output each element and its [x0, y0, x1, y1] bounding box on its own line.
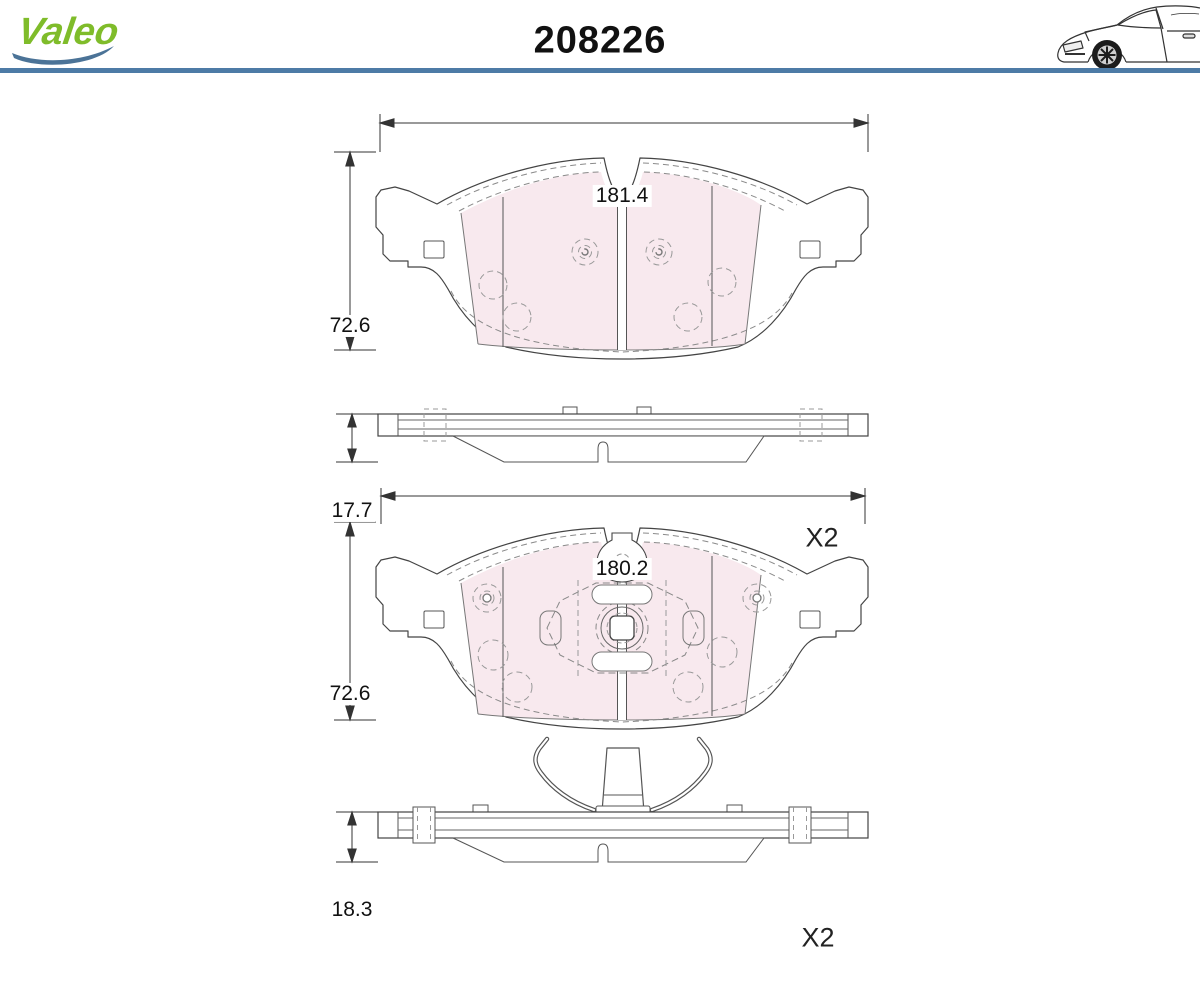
catalog-page: { "header": { "brand_name": "Valeo", "pa… [0, 0, 1200, 1000]
pad1-width-dimension [380, 114, 868, 152]
pad2-height-label: 72.6 [327, 683, 374, 705]
pad1-thickness-dimension [336, 414, 378, 462]
pad2-quantity-label: X2 [799, 925, 836, 952]
valeo-logo: Valeo [8, 6, 126, 68]
pad1-height-label: 72.6 [327, 315, 374, 337]
part-number: 208226 [534, 20, 667, 63]
technical-drawing-area: 181.4 72.6 17.7 X2 180.2 72.6 18.3 X2 [0, 73, 1200, 1000]
car-icon [1055, 1, 1200, 71]
technical-drawing [0, 73, 1200, 1000]
pad1-width-label: 181.4 [593, 185, 652, 207]
pad2-thickness-label: 18.3 [329, 899, 376, 921]
brand-text: Valeo [15, 10, 121, 53]
pad1-thickness-label: 17.7 [329, 500, 376, 522]
brand-wordmark: Valeo [15, 10, 121, 53]
spring-clip [535, 739, 710, 814]
header: Valeo 208226 [0, 0, 1200, 73]
pad2-width-dimension [381, 488, 865, 524]
pad2-width-label: 180.2 [593, 558, 652, 580]
wheel-icon [1092, 40, 1122, 70]
pad2-side-view [378, 739, 868, 862]
pad2-thickness-dimension [336, 812, 378, 862]
pad1-quantity-label: X2 [803, 525, 840, 552]
pad1-side-view [378, 407, 868, 462]
